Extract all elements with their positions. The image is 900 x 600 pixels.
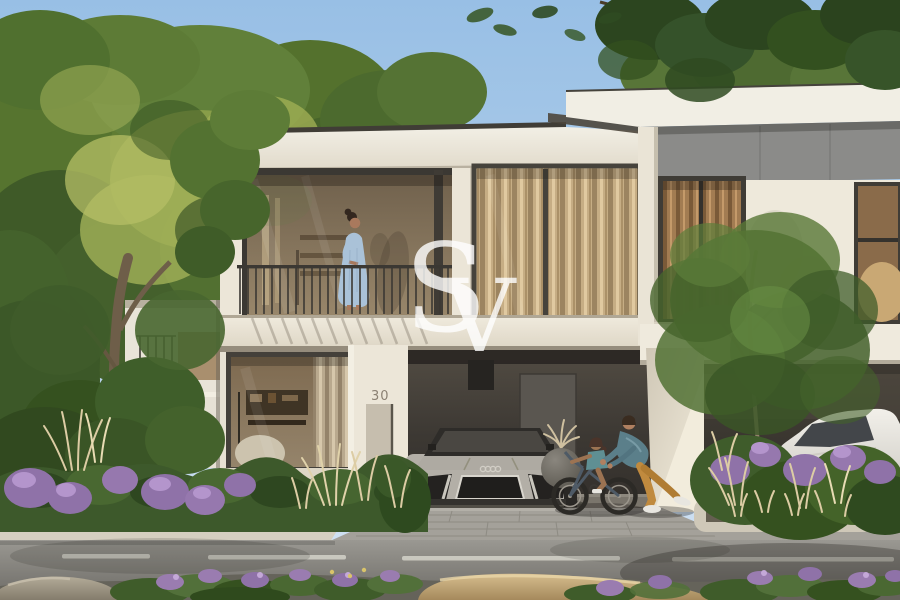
architectural-render: 30 [0, 0, 900, 600]
watermark-letter-v: V [442, 258, 517, 375]
house-number: 30 [371, 389, 390, 404]
